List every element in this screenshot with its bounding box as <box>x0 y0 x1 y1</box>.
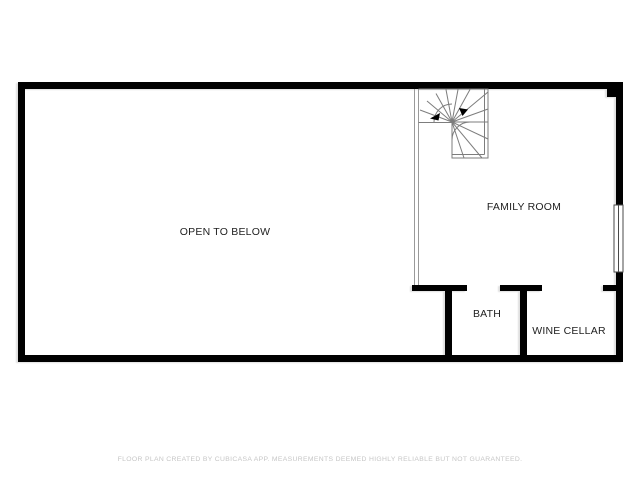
wall-interior-h1 <box>412 285 467 291</box>
footer-disclaimer: FLOOR PLAN CREATED BY CUBICASA APP. MEAS… <box>0 456 640 463</box>
wall-bottom <box>18 355 623 362</box>
floor-plan-drawing <box>0 0 640 480</box>
room-label-bath: BATH <box>473 308 501 320</box>
wall-bath-left <box>445 285 452 362</box>
floor-plan-canvas: OPEN TO BELOW FAMILY ROOM BATH WINE CELL… <box>0 0 640 480</box>
room-label-wine-cellar: WINE CELLAR <box>532 325 606 337</box>
wall-bath-right <box>520 285 527 362</box>
room-label-family-room: FAMILY ROOM <box>487 201 561 213</box>
railing-icon <box>415 89 419 285</box>
wall-interior-h3 <box>603 285 616 291</box>
room-label-open-to-below: OPEN TO BELOW <box>180 226 270 238</box>
walls-layer <box>18 82 623 362</box>
wall-top <box>18 82 623 89</box>
wall-corner-block <box>607 82 623 97</box>
wall-left <box>18 82 25 362</box>
window-icon <box>614 205 623 272</box>
spiral-staircase-icon <box>419 89 489 158</box>
